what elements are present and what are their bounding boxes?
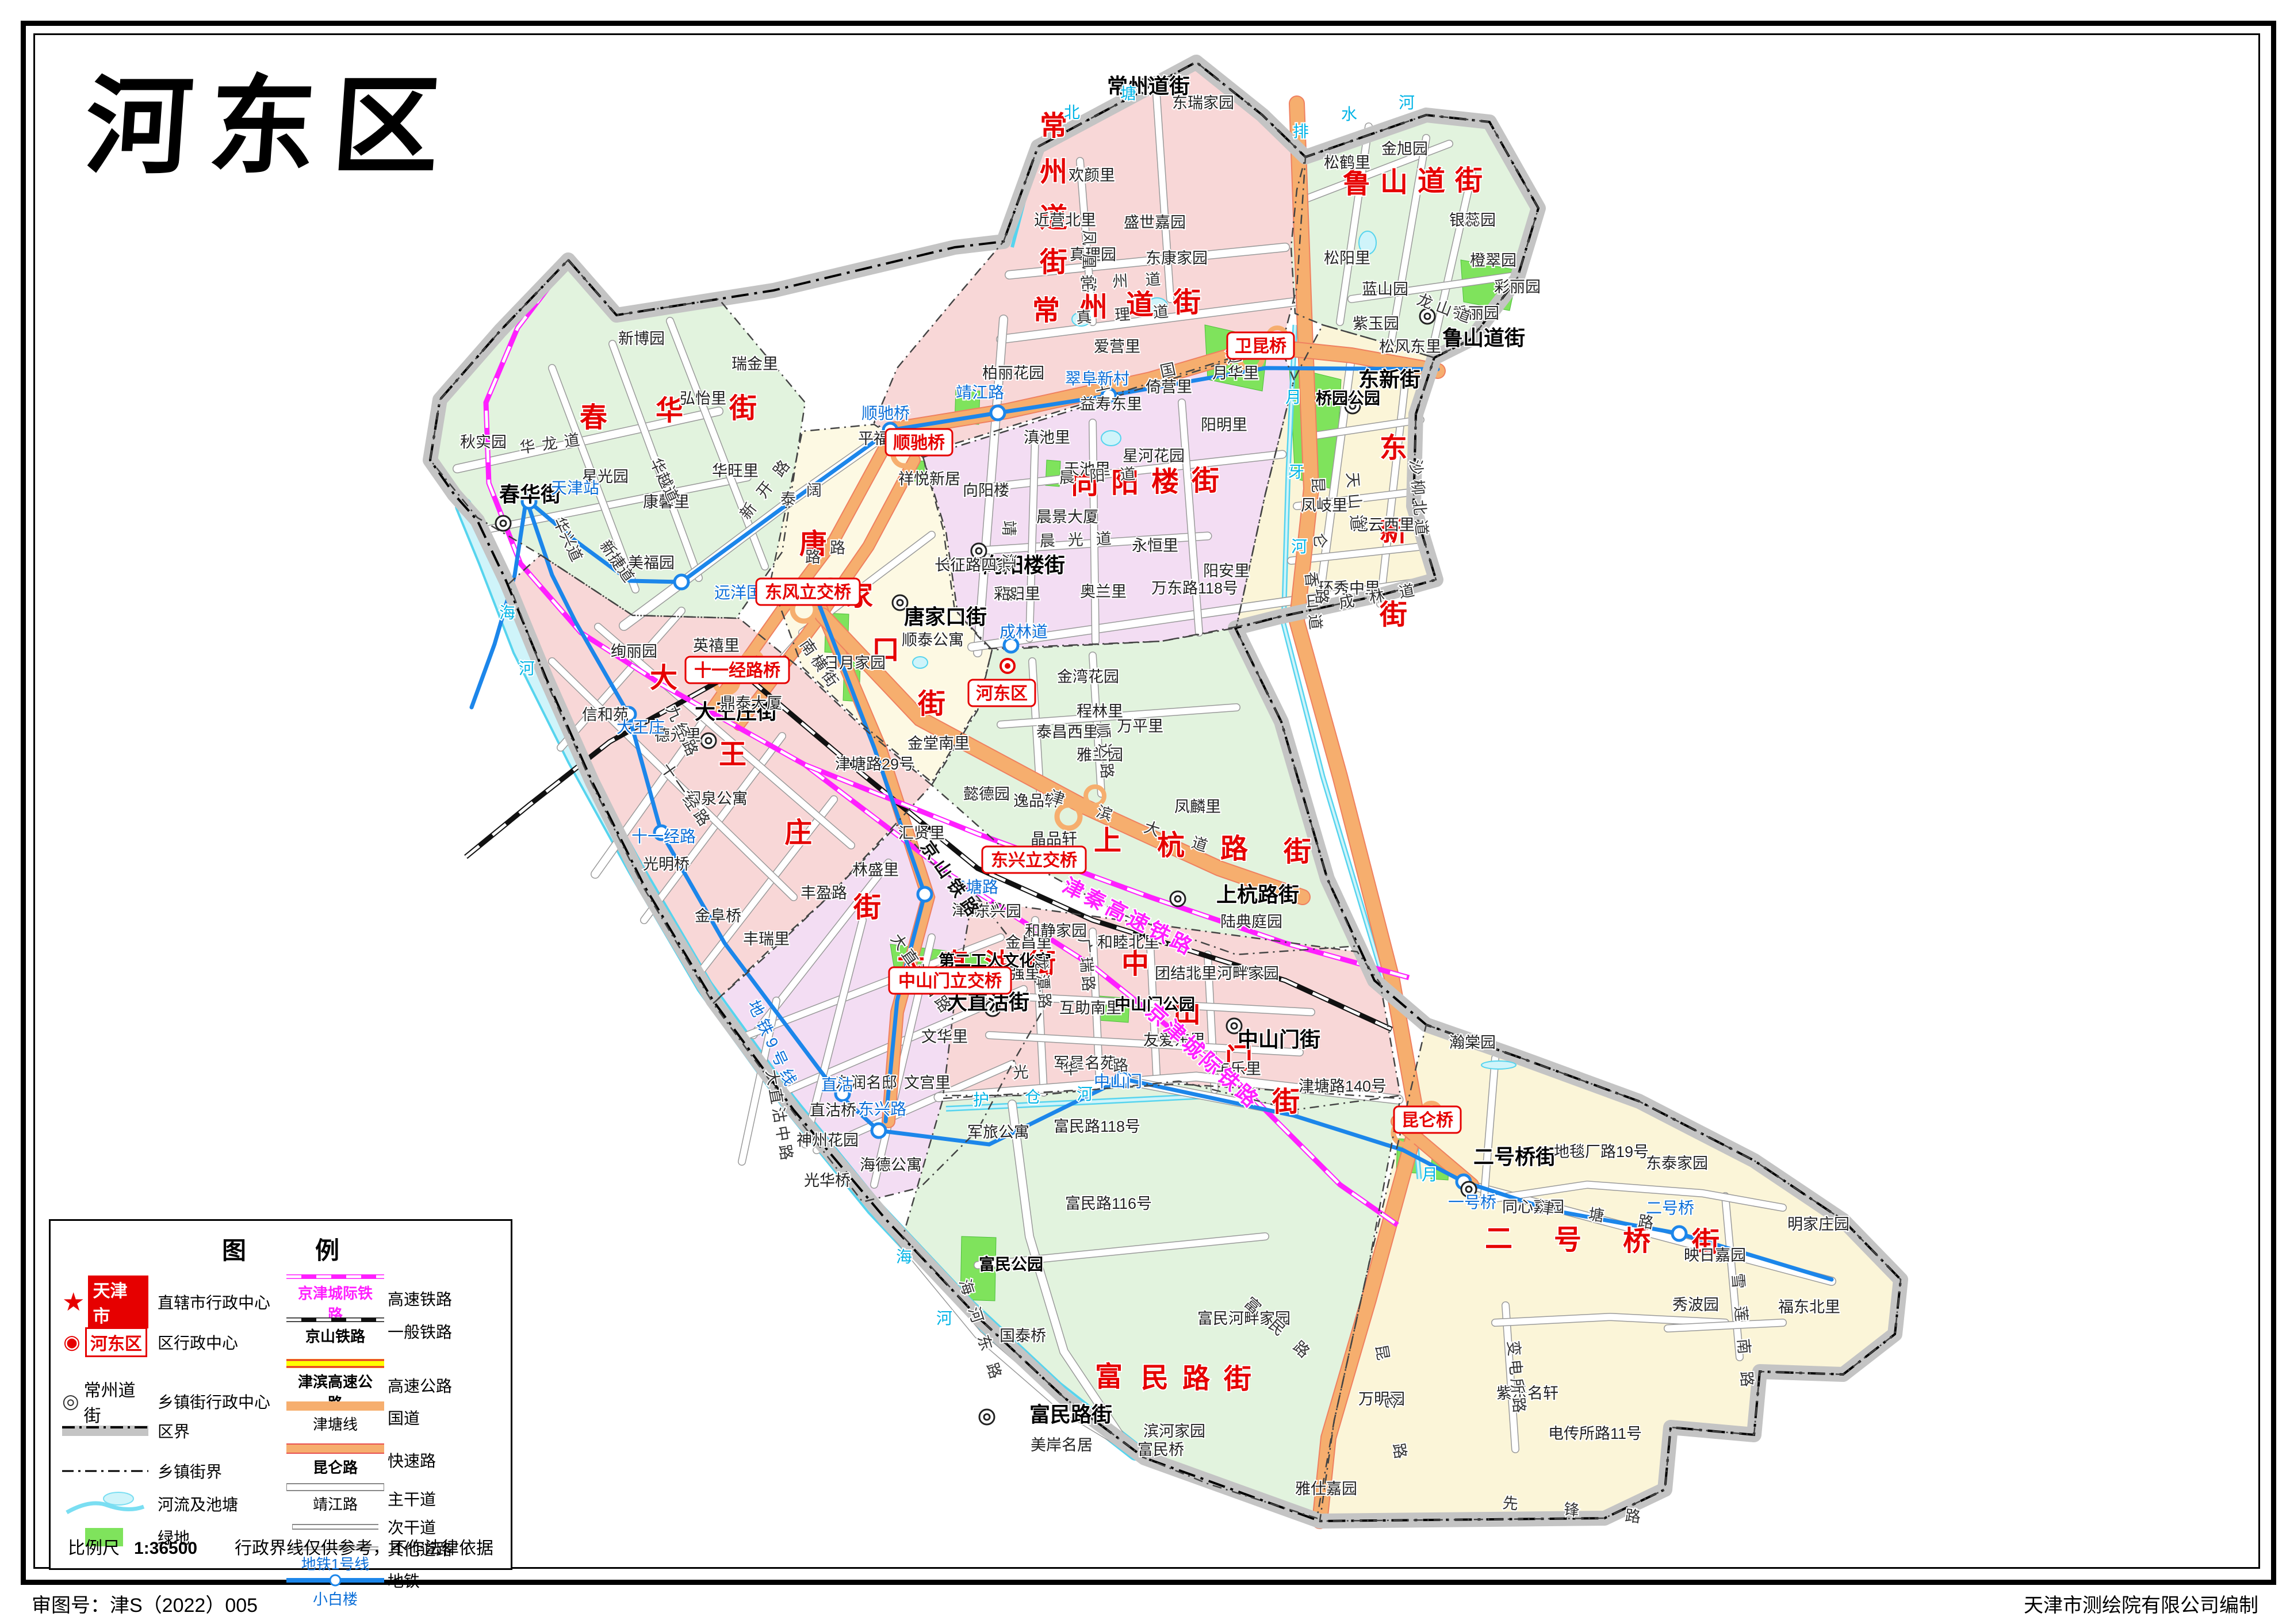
arterial-name: 靖江路 [313, 1493, 358, 1514]
legend-desc: 区行政中心 [158, 1331, 238, 1354]
legend-title: 图例 [51, 1231, 511, 1266]
star-icon: ★ [62, 1288, 85, 1317]
legend-item-river: 河流及池塘 [62, 1488, 238, 1519]
legend-desc: 高速公路 [388, 1374, 452, 1397]
secondary-sample [292, 1523, 378, 1530]
fast-name: 昆仑路 [313, 1456, 358, 1477]
legend-desc: 高速铁路 [388, 1287, 452, 1310]
approval-number: 审图号：津S（2022）005 [32, 1589, 258, 1618]
district-border-sample [62, 1423, 148, 1438]
legend-item-township-border: 乡镇街界 [62, 1460, 222, 1483]
township-border-sample [62, 1468, 148, 1474]
scale-label: 比例尺 [68, 1539, 120, 1558]
township-center-icon: ◎ [62, 1390, 79, 1413]
legend-item-national: 津塘线 国道 [292, 1400, 420, 1434]
page-title: 河东区 [81, 40, 463, 194]
map-page: 常州道街常州道街鲁山道街春华街东新街向阳楼街唐家口街大王庄街大直沽街上杭路街中山… [0, 0, 2290, 1624]
legend-desc: 快速路 [388, 1449, 436, 1472]
fast-road-sample [286, 1442, 384, 1455]
legend-desc: 一般铁路 [388, 1320, 452, 1343]
legend-desc: 国道 [388, 1406, 420, 1429]
legend-item-district-border: 区界 [62, 1419, 190, 1442]
city-sample: 天津市 [88, 1276, 148, 1328]
legend-box: 图例 ★ 天津市 直辖市行政中心 ◉ 河东区 区行政中心 ◎ 常州道街 乡镇街行… [49, 1219, 512, 1570]
legend-item-rail: 京山铁路 一般铁路 [292, 1316, 452, 1346]
district-sample: 河东区 [85, 1327, 147, 1357]
district-center-icon: ◉ [63, 1331, 81, 1354]
legend-item-arterial: 靖江路 主干道 [292, 1483, 436, 1514]
legend-item-district: ◉ 河东区 区行政中心 [62, 1327, 238, 1357]
legend-desc: 河流及池塘 [158, 1492, 238, 1515]
scale-bar: 比例尺 1:36500 [68, 1534, 197, 1559]
legend-desc: 主干道 [388, 1487, 436, 1510]
arterial-sample [286, 1483, 384, 1492]
expwy-sample [286, 1358, 384, 1369]
national-road-sample [286, 1400, 384, 1412]
rail-name: 京山铁路 [305, 1325, 365, 1346]
legend-desc: 直辖市行政中心 [158, 1290, 270, 1313]
credits-bar: 审图号：津S（2022）005 天津市测绘院有限公司编制 [0, 1583, 2290, 1623]
scale-value: 1:36500 [134, 1539, 197, 1558]
hsr-sample [286, 1273, 384, 1281]
legend-desc: 乡镇街行政中心 [158, 1390, 270, 1413]
national-name: 津塘线 [313, 1413, 358, 1434]
legend-desc: 乡镇街界 [158, 1460, 222, 1483]
legend-item-city: ★ 天津市 直辖市行政中心 [62, 1276, 270, 1328]
legend-item-fast: 昆仑路 快速路 [292, 1442, 436, 1477]
legend-desc: 区界 [158, 1419, 190, 1442]
river-sample [62, 1488, 148, 1519]
legend-disclaimer: 行政界线仅供参考，不作法律依据 [235, 1534, 493, 1559]
publisher: 天津市测绘院有限公司编制 [2024, 1589, 2258, 1618]
rail-sample [286, 1316, 384, 1324]
